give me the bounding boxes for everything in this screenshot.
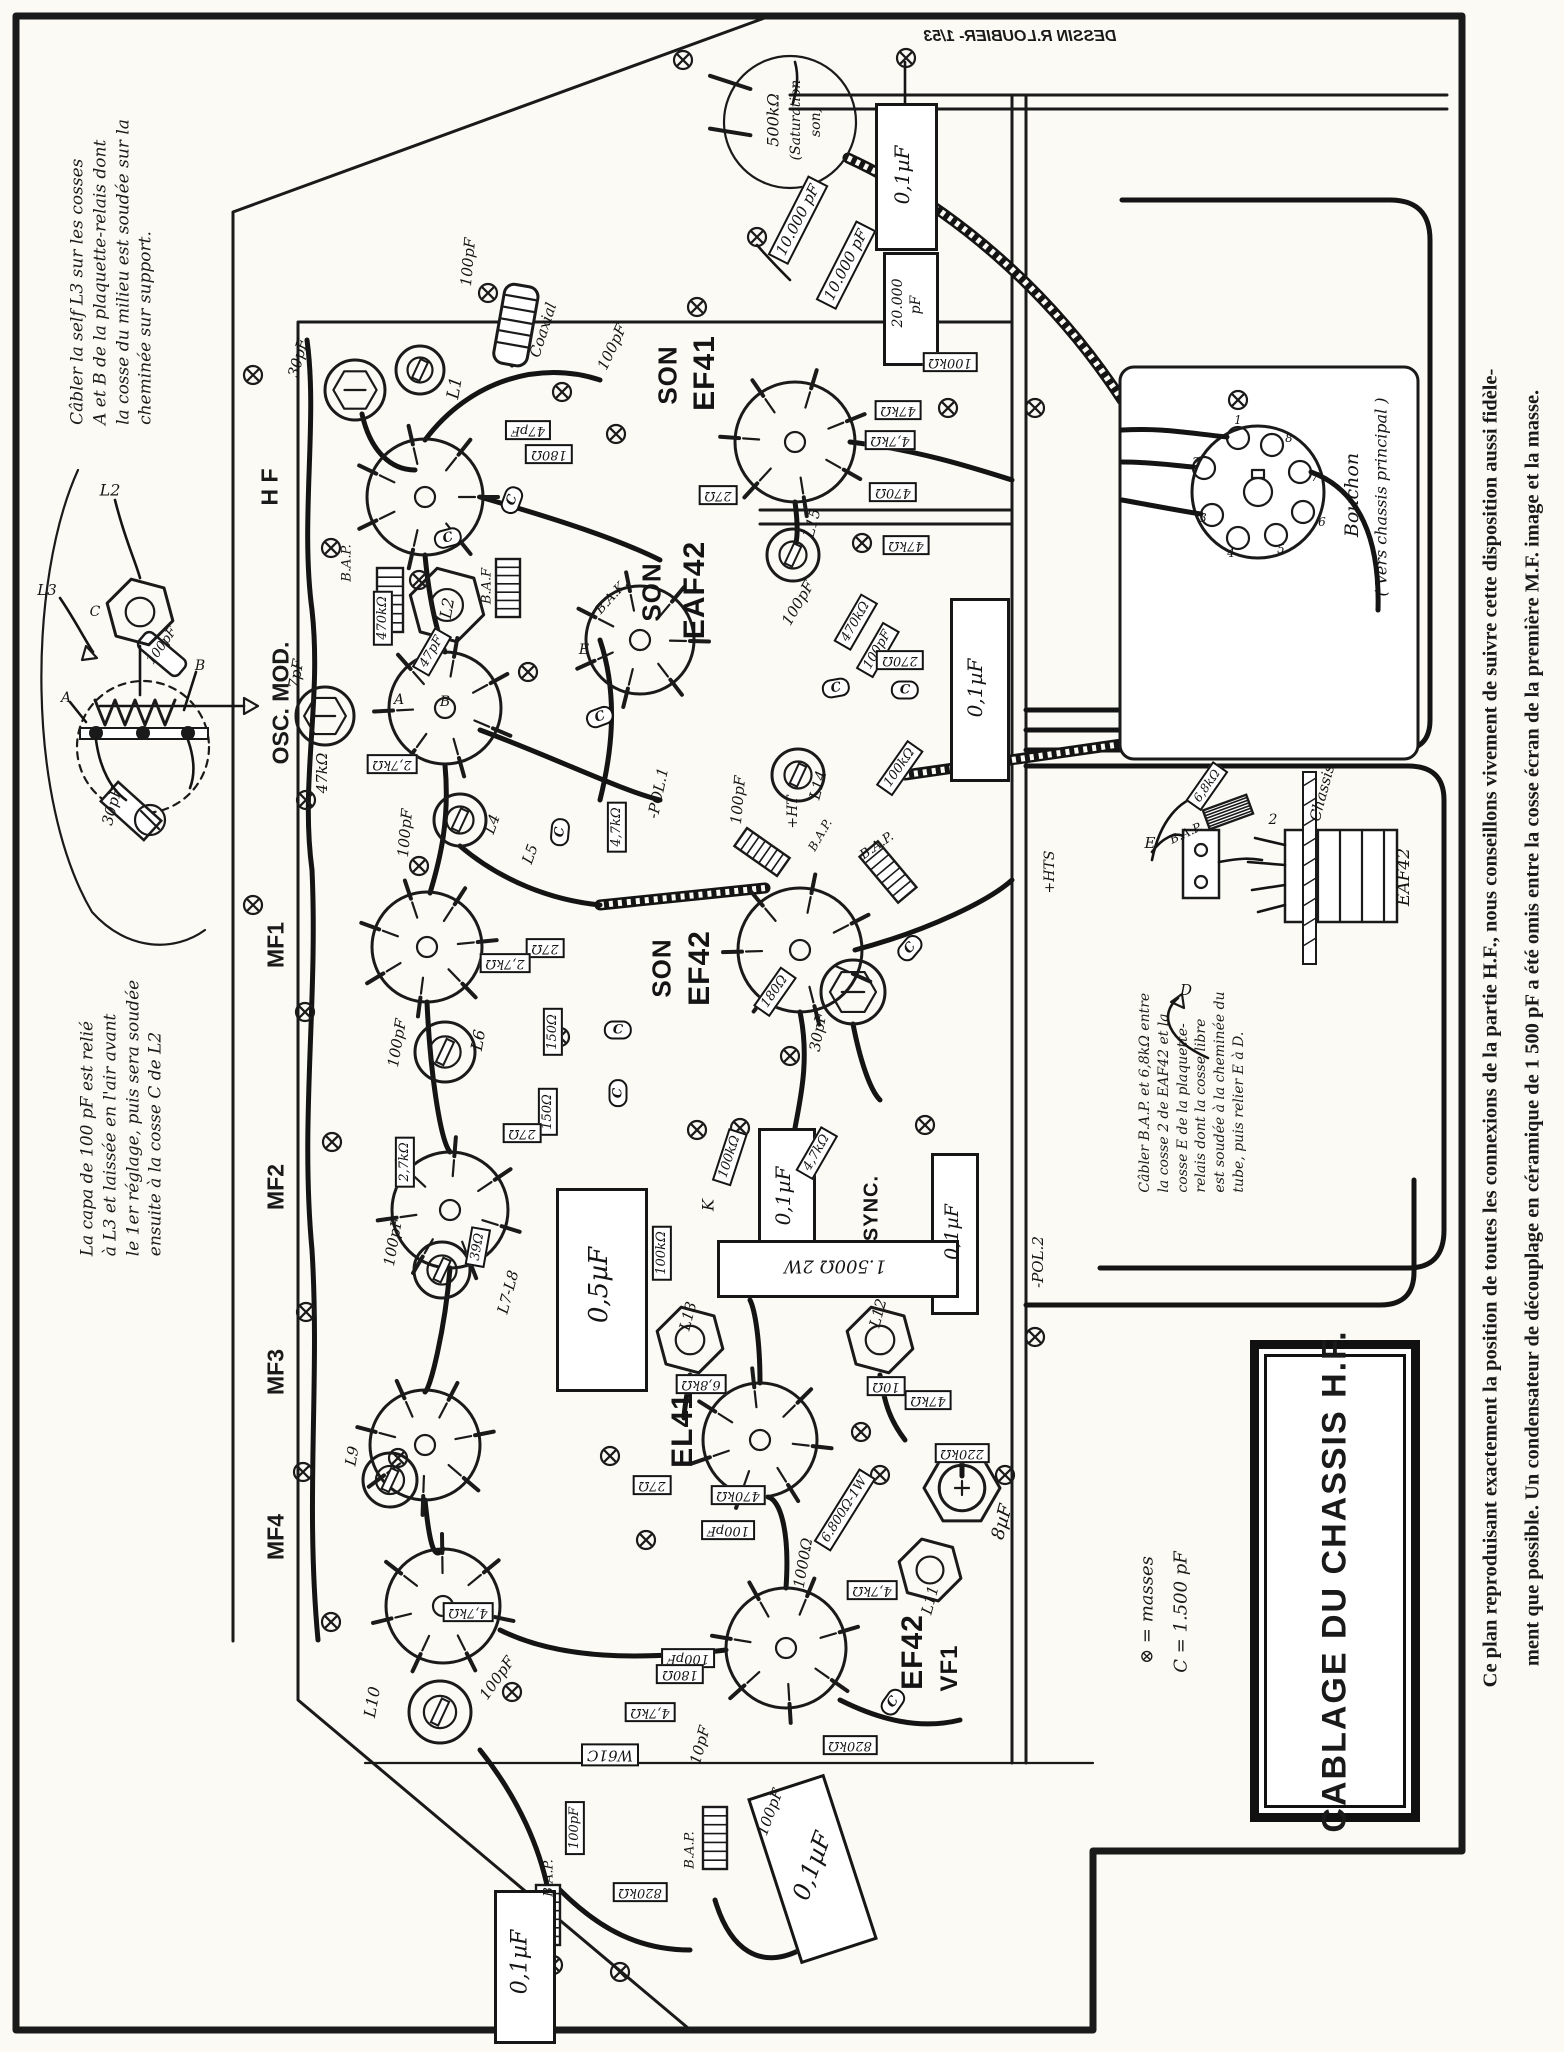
note-line: à L3 et laissée en l'air avant <box>99 980 122 1256</box>
ground-symbol <box>1026 1328 1044 1346</box>
component-label: B <box>440 694 450 710</box>
tube-name-label: SON <box>653 345 684 404</box>
rf-choke <box>496 559 520 617</box>
ground-symbol <box>410 857 428 875</box>
ground-symbol <box>479 284 497 302</box>
component-label: L2 <box>100 481 121 500</box>
component-label: 20.000 <box>890 279 906 328</box>
rf-choke <box>703 1807 727 1869</box>
component-label: 4 <box>1227 546 1235 560</box>
component-label: 470kΩ <box>710 1485 765 1505</box>
component-label: 2,7kΩ <box>395 1136 415 1187</box>
component-label: L1 <box>443 375 467 400</box>
component-label: 47kΩ <box>904 1390 951 1410</box>
note-line: le 1er réglage, puis sera soudée <box>122 980 145 1256</box>
ground-symbol <box>939 399 957 417</box>
component-label: B.A.P. <box>340 544 355 581</box>
tube-name-label: EL41 <box>666 1392 700 1468</box>
ground-symbol <box>322 1613 340 1631</box>
component-label: 2 <box>1192 455 1200 469</box>
component-label: 3 <box>1199 511 1207 525</box>
component-label: B <box>195 658 205 674</box>
note-line: la cosse 2 de EAF42 et la <box>1155 991 1174 1192</box>
handwritten-note-1: Câbler la self L3 sur les cossesA et B d… <box>66 119 157 425</box>
component-label: 820kΩ <box>612 1882 667 1902</box>
handwritten-note-2: La capa de 100 pF est reliéà L3 et laiss… <box>76 980 167 1256</box>
coil-trim <box>296 687 354 745</box>
component-label: 2,7kΩ <box>479 953 530 973</box>
component-label: 0,1µF <box>508 1930 533 1995</box>
stage-label-mf2: MF2 <box>263 1164 290 1210</box>
stage-label-mf1: MF1 <box>263 922 290 968</box>
ground-symbol <box>1026 399 1044 417</box>
component-label: 4,7kΩ <box>624 1702 675 1722</box>
component-label: 27Ω <box>502 1123 541 1143</box>
component-label: 180Ω <box>656 1664 704 1684</box>
ground-symbol <box>852 1423 870 1441</box>
component-label: 8 <box>1285 431 1293 445</box>
component-label: 270Ω <box>876 650 924 670</box>
note-line: relais dont la cosse libre <box>1192 991 1211 1192</box>
component-label: 220kΩ <box>934 1443 989 1463</box>
component-label: 470kΩ <box>373 590 393 645</box>
signature: DESSIN R.LOUBIER- 1/53 <box>924 28 1117 46</box>
coil-pot <box>710 56 856 188</box>
component-label: 180Ω <box>525 444 573 464</box>
component-label: 27Ω <box>525 938 564 958</box>
component-label: B.A.F <box>480 568 495 604</box>
component-label: EAF42 <box>1394 848 1414 906</box>
component-label: 4,7kΩ <box>607 801 627 852</box>
component-label: 0,1µF <box>771 1167 795 1226</box>
component-label: C <box>604 1021 632 1040</box>
component-label: -POL.2 <box>1029 1236 1047 1288</box>
component-label: 1 <box>1234 413 1242 427</box>
component-label: 0,1µF <box>941 1204 963 1260</box>
component-label: C <box>891 681 919 700</box>
component-label: (Saturation <box>788 80 804 161</box>
component-label: 2,7kΩ <box>366 754 417 774</box>
coil-coil <box>409 1681 471 1743</box>
ground-symbol <box>637 1531 655 1549</box>
stage-label-osc-mod-: OSC. MOD. <box>268 642 295 765</box>
component-label: L6 <box>467 1028 489 1052</box>
component-label: 27Ω <box>698 485 737 505</box>
component-label: 4,7kΩ <box>442 1602 493 1622</box>
tube-name-label: SYNC. <box>861 1175 884 1241</box>
component-label: 500kΩ <box>764 93 783 147</box>
component-label: L2 <box>436 596 458 620</box>
ground-symbol <box>897 49 915 67</box>
component-label: +HT <box>785 795 801 828</box>
tube-socket <box>359 426 498 568</box>
component-label: 4,7kΩ <box>864 430 915 450</box>
note-line: la cosse du milieu est soudée sur la <box>112 119 135 425</box>
component-label: 7 <box>1311 470 1319 484</box>
ground-symbol <box>323 1133 341 1151</box>
component-label: C <box>609 1079 628 1107</box>
tube-name-label: EF41 <box>688 335 722 411</box>
component-label: son) <box>808 107 824 137</box>
component-label: 47kΩ <box>313 753 331 794</box>
component-label: 0,1µF <box>890 146 914 205</box>
stage-label-h-f: H F <box>257 468 284 505</box>
title-block: CABLAGE DU CHASSIS H.F. <box>1250 1340 1420 1822</box>
component-label: L9 <box>341 1445 362 1467</box>
schematic-page: 30pFL1Coaxial100pF100pF47pF180ΩCCB.A.P.B… <box>0 0 1564 2052</box>
note-line: La capa de 100 pF est relié <box>76 980 99 1256</box>
component-label: K <box>699 1199 718 1211</box>
footer-line-1: Ce plan reproduisant exactement la posit… <box>1480 369 1503 1688</box>
tube-name-label: SON <box>637 562 668 621</box>
ground-symbol <box>322 539 340 557</box>
note-line: cheminée sur support. <box>135 119 158 425</box>
component-label: B.A.P. <box>683 1831 698 1868</box>
tube-name-label: EF42 <box>896 1614 930 1690</box>
page-title: CABLAGE DU CHASSIS H.F. <box>1316 1329 1355 1832</box>
ground-symbol <box>244 896 262 914</box>
ground-symbol <box>674 51 692 69</box>
component-label: 2 <box>1269 812 1278 828</box>
rf-choke <box>734 828 789 876</box>
ground-symbol <box>611 1963 629 1981</box>
note-line: cosse E de la plaquette- <box>1173 991 1192 1192</box>
component-label: 1.500Ω 2W <box>784 1256 886 1277</box>
component-label: L3 <box>37 581 57 599</box>
coil-coil <box>414 1242 470 1298</box>
ground-symbol <box>297 1303 315 1321</box>
ground-symbol <box>853 534 871 552</box>
component-label: 10Ω <box>866 1376 905 1396</box>
rf-choke <box>1203 795 1253 830</box>
coil-coil <box>434 794 486 846</box>
component-label: A <box>394 692 404 708</box>
ground-symbol <box>503 1683 521 1701</box>
component-label: E <box>1145 834 1156 852</box>
component-label: 0,5µF <box>584 1247 614 1323</box>
ground-symbol <box>781 1047 799 1065</box>
coil-elec <box>924 1455 1000 1521</box>
component-label: B.A.P. <box>542 1859 557 1896</box>
ground-symbol <box>553 383 571 401</box>
footer-line-2: ment que possible. Un condensateur de dé… <box>1522 390 1545 1666</box>
component-label: 6 <box>1318 515 1326 529</box>
tube-name-label: VF1 <box>936 1644 964 1691</box>
component-label: 47pF <box>505 420 551 440</box>
component-label: 100kΩ <box>922 352 977 372</box>
component-label: E <box>579 642 589 658</box>
component-label: 4,7kΩ <box>846 1580 897 1600</box>
tube-name-label: EF42 <box>683 930 717 1006</box>
tube-name-label: EAF42 <box>678 541 712 639</box>
component-label: 5 <box>1277 542 1285 556</box>
component-label: 0,1µF <box>963 659 987 718</box>
component-label: ( Vers chassis principal ) <box>1372 397 1391 596</box>
note-line: est soudée à la cheminée du <box>1211 991 1230 1192</box>
legend-masses: ⊗ = masses <box>1137 1556 1158 1664</box>
ground-symbol <box>296 1003 314 1021</box>
component-label: 47kΩ <box>882 535 929 555</box>
note-line: Câbler B.A.P. et 6,8kΩ entre <box>1136 991 1155 1192</box>
tube-socket <box>361 881 496 1017</box>
coil-trim <box>325 360 385 420</box>
ground-symbol <box>294 1463 312 1481</box>
component-label: 470Ω <box>869 482 917 502</box>
component-label: Bouchon <box>1341 453 1363 537</box>
tube-socket <box>720 370 864 516</box>
component-label: 100pF <box>565 1801 585 1855</box>
component-label: 6,8kΩ <box>675 1374 726 1394</box>
tube-socket <box>712 1579 858 1723</box>
component-label: 27Ω <box>632 1475 671 1495</box>
ground-symbol <box>688 1121 706 1139</box>
ground-symbol <box>607 425 625 443</box>
component-label: 47kΩ <box>874 400 921 420</box>
component-label: A <box>61 690 71 706</box>
component-label: 100kΩ <box>652 1225 672 1280</box>
component-label: C <box>90 604 101 620</box>
ground-symbol <box>1229 391 1247 409</box>
ground-symbol <box>748 228 766 246</box>
component-label: 150Ω <box>543 1008 563 1056</box>
tube-socket <box>723 875 870 1025</box>
ground-symbol <box>688 298 706 316</box>
ground-symbol <box>601 1447 619 1465</box>
tube-name-label: SON <box>647 938 678 997</box>
component-label: 100pF <box>701 1520 755 1540</box>
handwritten-note-3: Câbler B.A.P. et 6,8kΩ entrela cosse 2 d… <box>1136 991 1249 1192</box>
coil-coil <box>415 1022 475 1082</box>
note-line: A et B de la plaquette-relais dont <box>89 119 112 425</box>
note-line: Câbler la self L3 sur les cosses <box>66 119 89 425</box>
tube-socket <box>357 1381 493 1515</box>
note-line: tube, puis relier E à D. <box>1230 991 1249 1192</box>
ground-symbol <box>244 366 262 384</box>
ground-symbol <box>297 791 315 809</box>
stage-label-mf3: MF3 <box>263 1349 290 1395</box>
component-label: pF <box>908 296 924 315</box>
note-line: ensuite à la cosse C de L2 <box>145 980 168 1256</box>
ground-symbol <box>996 1466 1014 1484</box>
legend-capacitor: C = 1.500 pF <box>1171 1551 1192 1673</box>
ground-symbol <box>916 1116 934 1134</box>
stage-label-mf4: MF4 <box>263 1514 290 1560</box>
ground-symbol <box>519 663 537 681</box>
coil-coil <box>396 346 444 394</box>
coil-trim <box>821 960 885 1024</box>
component-label: 820kΩ <box>822 1735 877 1755</box>
component-label: W61C <box>581 1744 639 1767</box>
component-label: +HTS <box>1042 851 1058 894</box>
